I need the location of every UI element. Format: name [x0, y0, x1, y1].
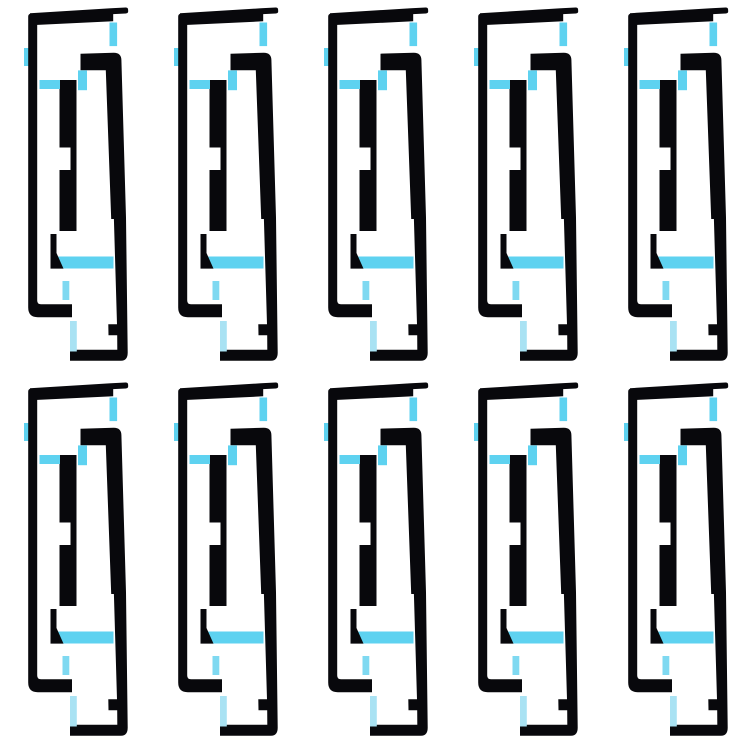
adhesive-strip-item	[24, 382, 128, 735]
adhesive-strip-item	[324, 7, 428, 360]
adhesive-strip-item	[474, 7, 578, 360]
adhesive-strip-item	[624, 7, 728, 360]
adhesive-strip-grid	[24, 7, 728, 735]
adhesive-strip-item	[24, 7, 128, 360]
adhesive-strip-item	[474, 382, 578, 735]
adhesive-strip-item	[324, 382, 428, 735]
adhesive-strips-illustration	[0, 0, 750, 750]
adhesive-strip-item	[174, 382, 278, 735]
product-image	[0, 0, 750, 750]
adhesive-strip-item	[624, 382, 728, 735]
adhesive-strip-item	[174, 7, 278, 360]
